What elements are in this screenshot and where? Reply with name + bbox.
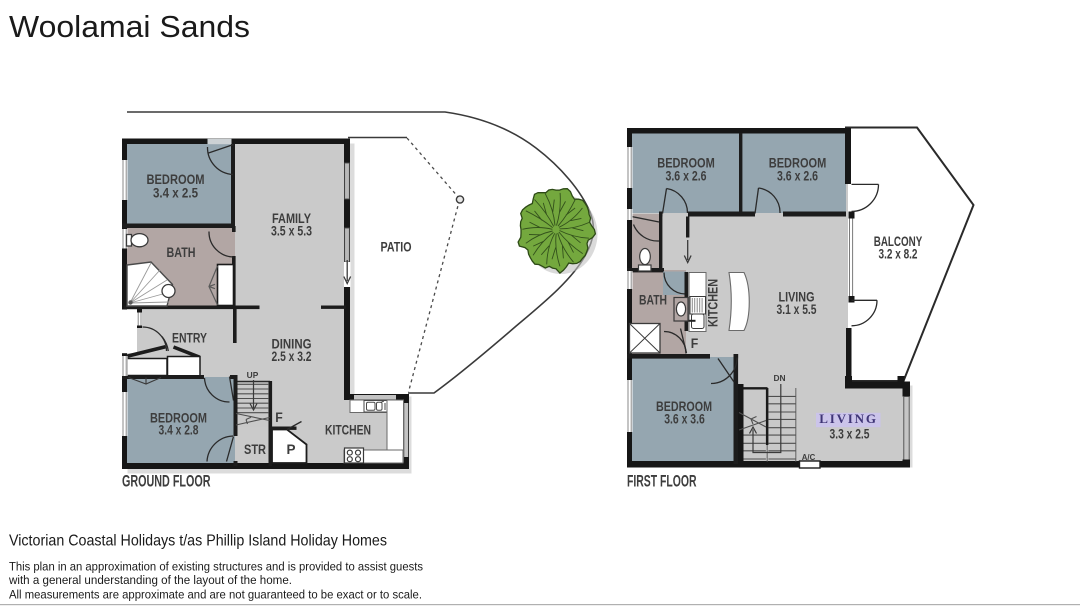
svg-text:FIRST FLOOR: FIRST FLOOR [627,472,697,491]
svg-text:ENTRY: ENTRY [172,331,207,347]
svg-text:GROUND FLOOR: GROUND FLOOR [122,472,211,491]
svg-text:3.4 x 2.5: 3.4 x 2.5 [153,186,198,201]
svg-text:DN: DN [773,373,785,383]
svg-text:LIVING: LIVING [819,411,877,426]
svg-text:3.4 x 2.8: 3.4 x 2.8 [159,423,199,438]
svg-text:3.6 x 2.6: 3.6 x 2.6 [666,169,707,184]
svg-text:F: F [691,335,699,351]
svg-text:3.2 x 8.2: 3.2 x 8.2 [879,247,918,262]
svg-text:All measurements are approxima: All measurements are approximate and are… [9,588,422,602]
svg-text:A/C: A/C [802,453,816,462]
svg-text:3.1 x 5.5: 3.1 x 5.5 [777,302,817,317]
svg-text:with a general understanding o: with a general understanding of the layo… [8,573,292,587]
svg-text:P: P [287,441,296,457]
svg-text:Victorian Coastal Holidays t/a: Victorian Coastal Holidays t/as Phillip … [9,533,387,550]
svg-text:BATH: BATH [167,245,196,261]
svg-text:3.3 x 2.5: 3.3 x 2.5 [830,427,870,442]
svg-text:PATIO: PATIO [381,240,412,256]
svg-text:3.6 x 3.6: 3.6 x 3.6 [664,412,705,427]
svg-text:3.5 x 5.3: 3.5 x 5.3 [271,224,312,239]
svg-text:STR: STR [244,442,266,458]
svg-text:This plan in an approximation: This plan in an approximation of existin… [9,560,423,574]
svg-text:3.6 x 2.6: 3.6 x 2.6 [777,169,818,184]
svg-text:KITCHEN: KITCHEN [706,279,721,327]
svg-text:UP: UP [247,370,259,380]
svg-text:F: F [275,409,283,425]
svg-text:2.5 x 3.2: 2.5 x 3.2 [272,349,312,364]
svg-text:BATH: BATH [639,293,667,309]
svg-text:Woolamai Sands: Woolamai Sands [9,9,250,44]
svg-text:KITCHEN: KITCHEN [325,423,371,439]
